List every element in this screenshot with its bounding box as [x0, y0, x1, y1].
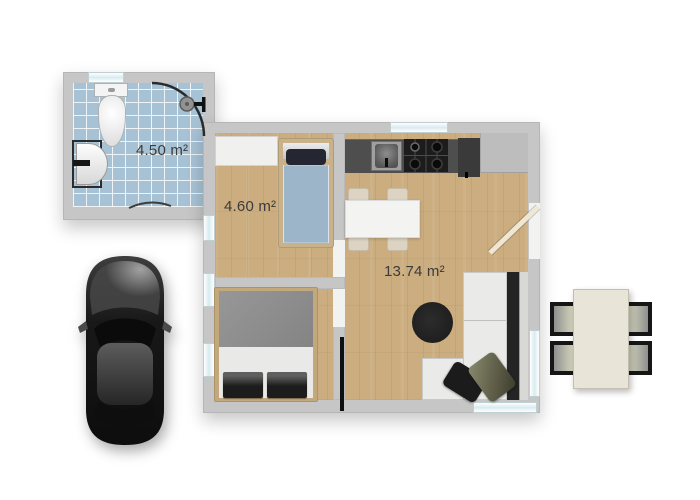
window-top-kitchen: [390, 122, 448, 133]
fridge-handle: [465, 172, 468, 178]
kitchen-counter-light: [480, 133, 528, 173]
dining-table: [345, 200, 420, 238]
tv-wall-mounted: [340, 337, 344, 411]
single-bed-blanket: [283, 165, 329, 243]
kitchen-faucet-icon: [385, 158, 388, 167]
car-roof: [97, 343, 153, 405]
patio-table: [573, 289, 629, 389]
stove-icon: [404, 139, 448, 172]
round-rug: [412, 302, 453, 343]
floor-plan-canvas: 4.50 m² 4.60 m² 13.74 m²: [0, 0, 700, 500]
bathroom-window: [88, 72, 124, 83]
toilet-flush-button: [108, 88, 115, 92]
area-label-living: 13.74 m²: [384, 263, 445, 280]
single-bed-pillow: [286, 149, 326, 165]
area-label-small-bedroom: 4.60 m²: [224, 198, 276, 215]
fridge: [458, 138, 480, 177]
wardrobe: [215, 136, 278, 166]
car-top-view: [78, 253, 172, 447]
doorway-entry: [529, 203, 540, 259]
burner-4: [432, 159, 442, 169]
doorway-small-bedroom: [333, 240, 345, 277]
area-label-bathroom: 4.50 m²: [136, 142, 188, 159]
sofa-seat-divider-1: [464, 320, 506, 321]
window-right-living: [529, 330, 540, 397]
doorway-bedroom: [333, 289, 345, 327]
burner-3: [410, 159, 420, 169]
burner-1: [411, 143, 419, 151]
double-bed-pillow-left: [223, 372, 263, 398]
burner-2: [432, 142, 442, 152]
double-bed-pillow-right: [267, 372, 307, 398]
window-bottom-living: [473, 402, 537, 413]
car-hood-shine: [90, 261, 160, 315]
sink-faucet-icon: [73, 160, 90, 166]
sofa-side-panel: [519, 272, 528, 400]
double-bed-blanket: [219, 291, 313, 347]
window-left-1: [203, 215, 215, 241]
kitchen-sink: [371, 141, 402, 171]
